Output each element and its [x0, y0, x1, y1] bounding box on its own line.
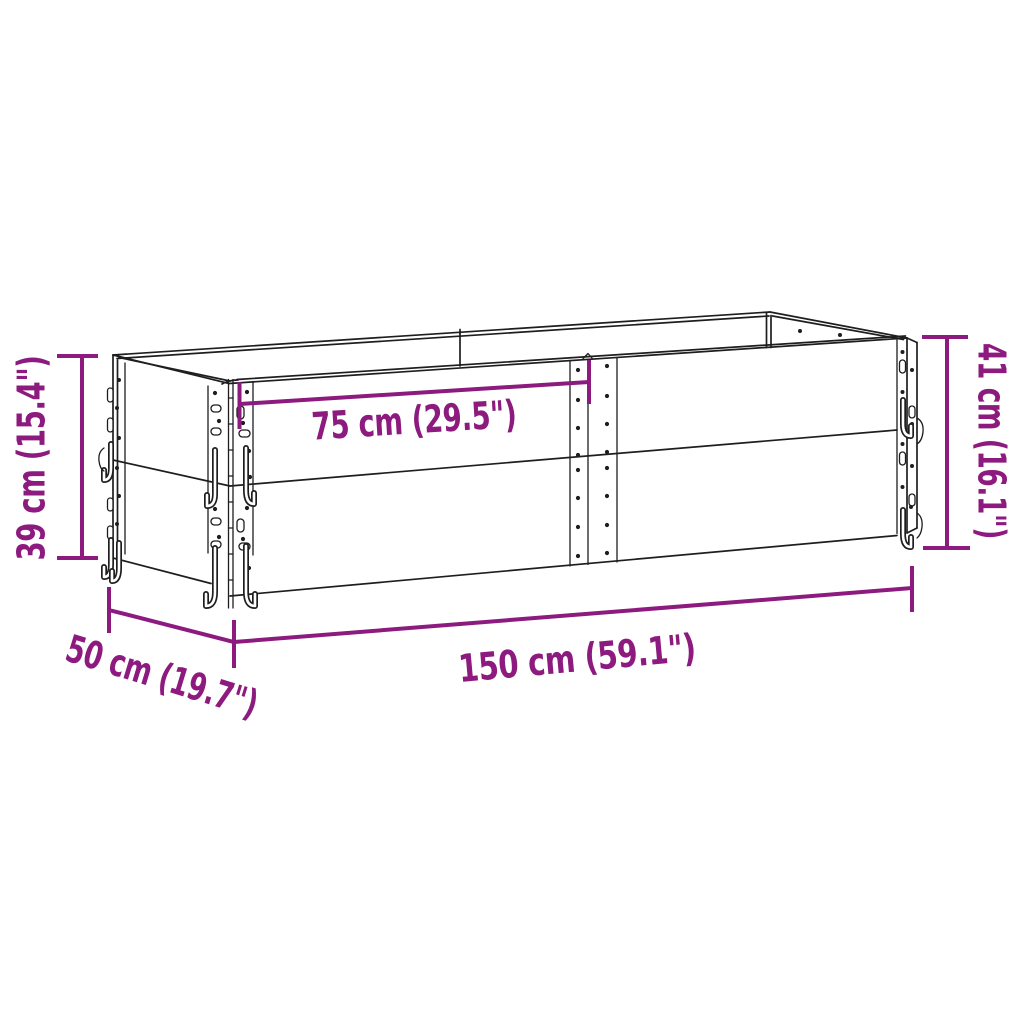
- dimension-label-height-right: 41 cm (16.1"): [970, 343, 1014, 539]
- product-image: 39 cm (15.4") 41 cm (16.1") 75 cm (29.5"…: [0, 0, 1024, 1024]
- batten-screws: [576, 364, 609, 558]
- corner-hinge-front-right: [897, 340, 923, 547]
- product-dimension-diagram: 39 cm (15.4") 41 cm (16.1") 75 cm (29.5"…: [0, 0, 1024, 1024]
- dimension-label-length: 150 cm (59.1"): [457, 626, 698, 691]
- dimension-label-half-length: 75 cm (29.5"): [310, 392, 517, 449]
- corner-hinge-front-left: [206, 380, 255, 609]
- middle-joint-batten: [570, 354, 617, 567]
- dimension-75cm: 75 cm (29.5"): [240, 360, 590, 449]
- dimension-label-height-left: 39 cm (15.4"): [9, 356, 53, 561]
- corner-hinge-back-left: [99, 363, 125, 581]
- dimension-39cm: 39 cm (15.4"): [9, 356, 98, 561]
- pallet-collar-drawing: [99, 312, 923, 608]
- dimension-150cm: 150 cm (59.1"): [234, 566, 912, 691]
- dimension-41cm: 41 cm (16.1"): [922, 337, 1014, 548]
